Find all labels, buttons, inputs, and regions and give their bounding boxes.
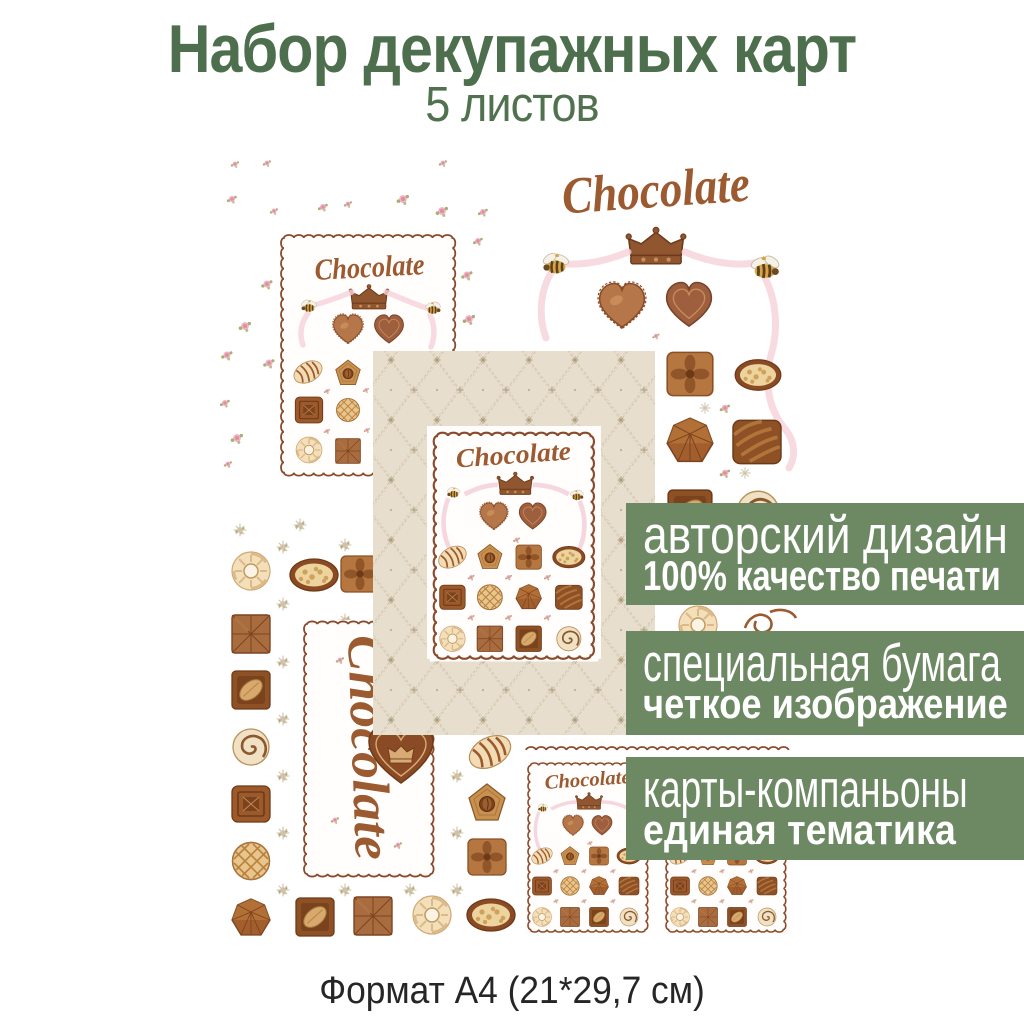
svg-text:Chocolate: Chocolate [560,156,752,226]
svg-text:Chocolate: Chocolate [314,248,426,287]
